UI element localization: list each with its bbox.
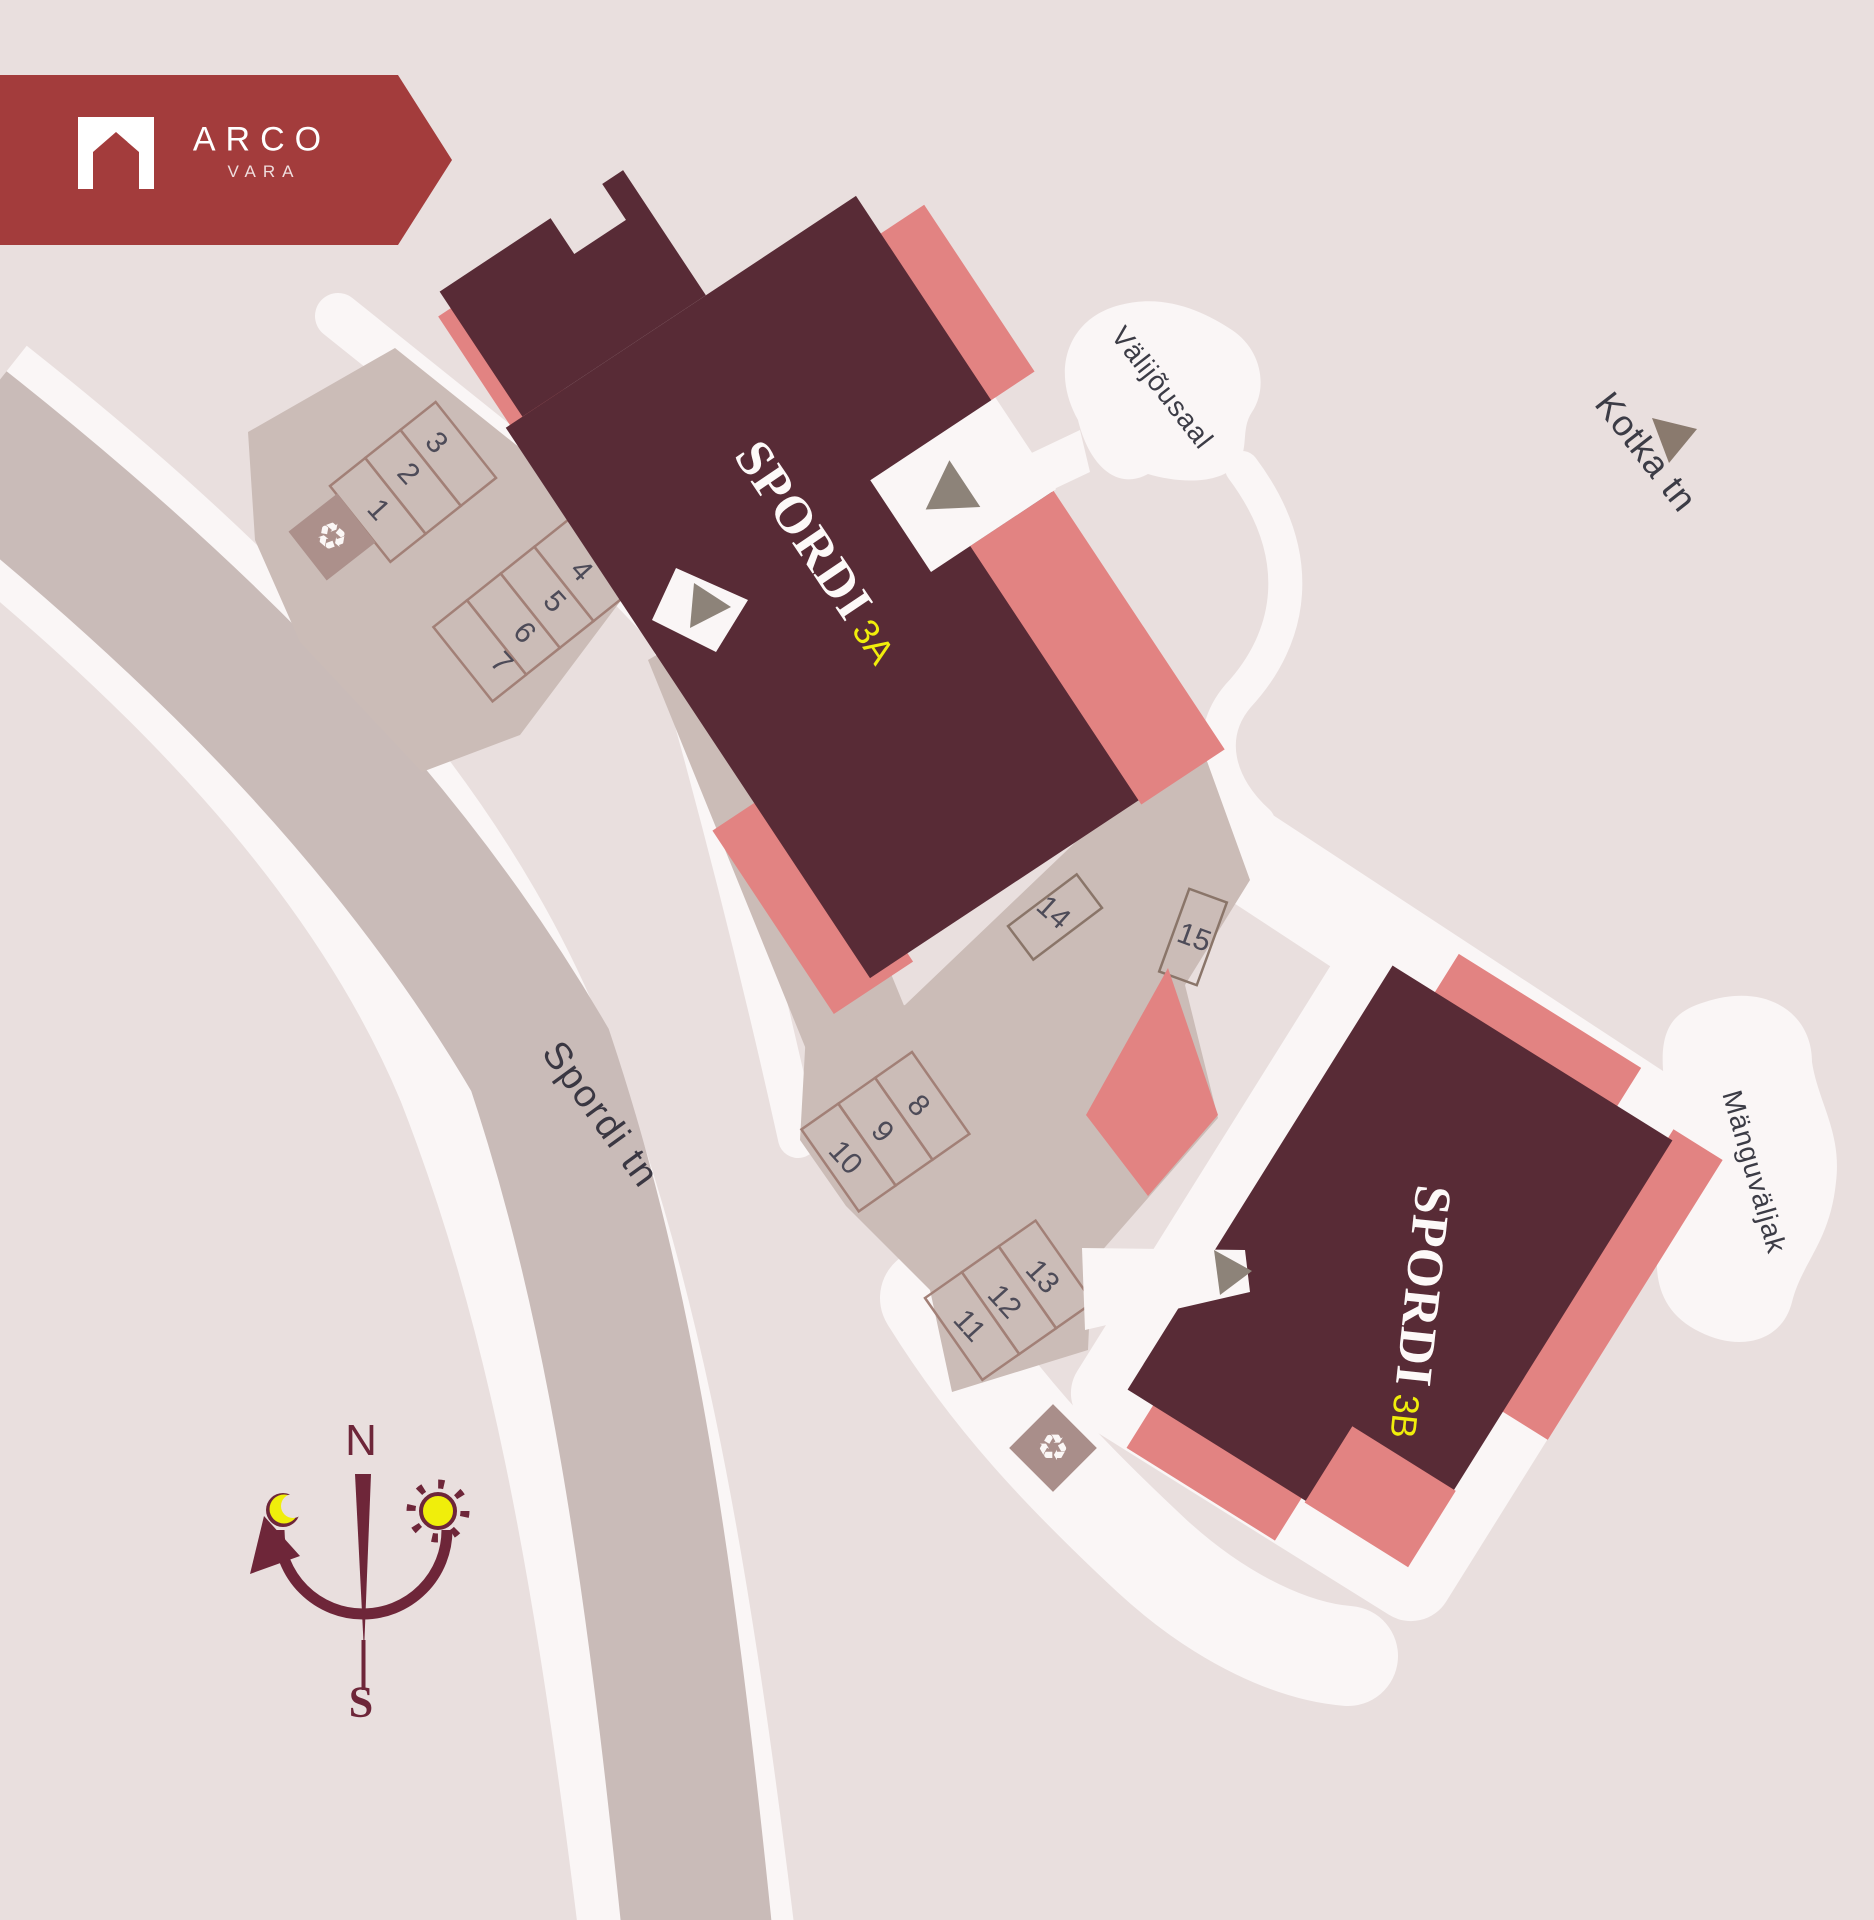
walkway-gym-to-playground — [1219, 468, 1285, 822]
compass — [250, 1474, 465, 1690]
building-3b-unit: 3B — [1382, 1392, 1427, 1440]
compass-north-label: N — [345, 1416, 377, 1466]
sun-icon — [411, 1484, 465, 1538]
site-plan-map — [0, 0, 1874, 1920]
moon-icon — [266, 1493, 305, 1527]
logo-banner-shape — [0, 75, 452, 245]
logo-subbrand-text: VARA — [227, 162, 300, 182]
site-plan: ARCO VARA SPORDI3A SPORDI3B Spordi tn Ko… — [0, 0, 1874, 1920]
compass-south-label: S — [349, 1677, 373, 1728]
house-icon — [78, 117, 154, 189]
logo-banner — [0, 75, 452, 245]
logo-brand-text: ARCO — [193, 121, 331, 160]
compass-needle — [355, 1474, 371, 1652]
recycling-icon: ♻ — [1037, 1427, 1069, 1469]
